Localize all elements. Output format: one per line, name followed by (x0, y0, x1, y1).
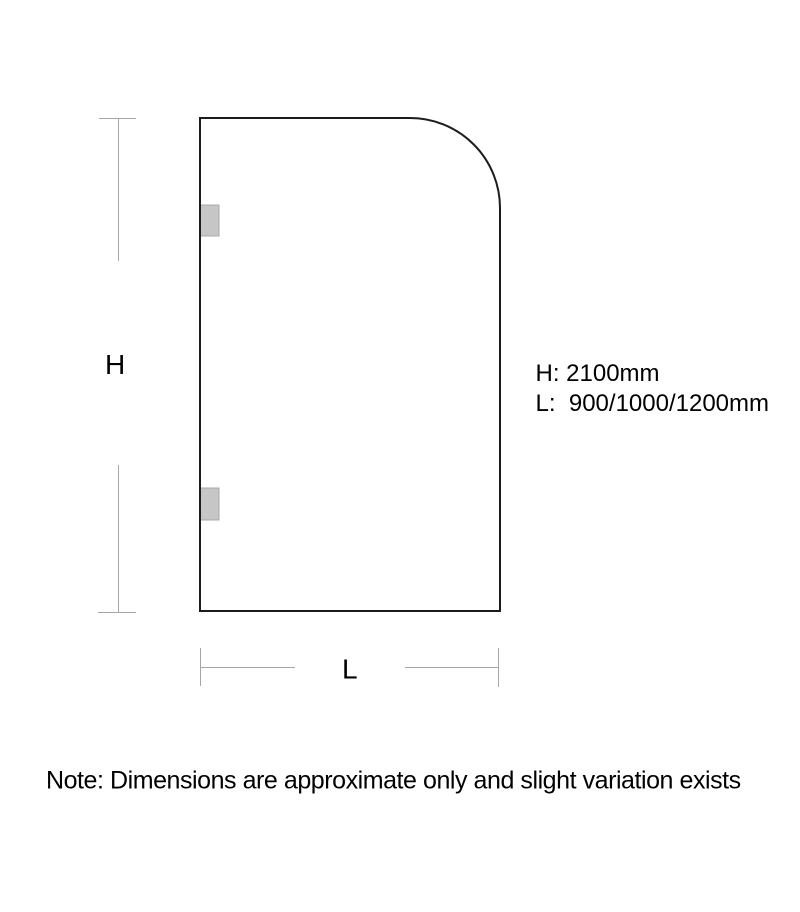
svg-text:L: 900/1000/1200mm: L: 900/1000/1200mm (536, 390, 770, 417)
svg-text:Note: Dimensions are approxima: Note: Dimensions are approximate only an… (46, 767, 741, 795)
svg-text:H: H (105, 349, 125, 380)
svg-text:L: L (342, 654, 358, 685)
svg-text:H: 2100mm: H: 2100mm (536, 360, 660, 387)
